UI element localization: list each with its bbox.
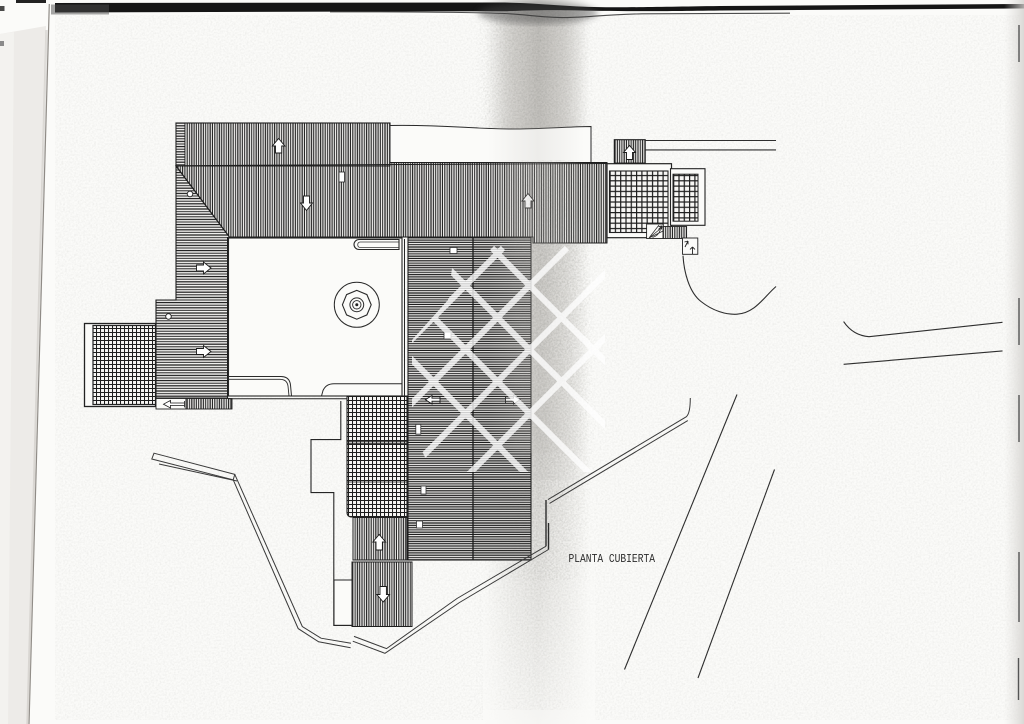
svg-text:PLANTA CUBIERTA: PLANTA CUBIERTA — [569, 553, 656, 566]
